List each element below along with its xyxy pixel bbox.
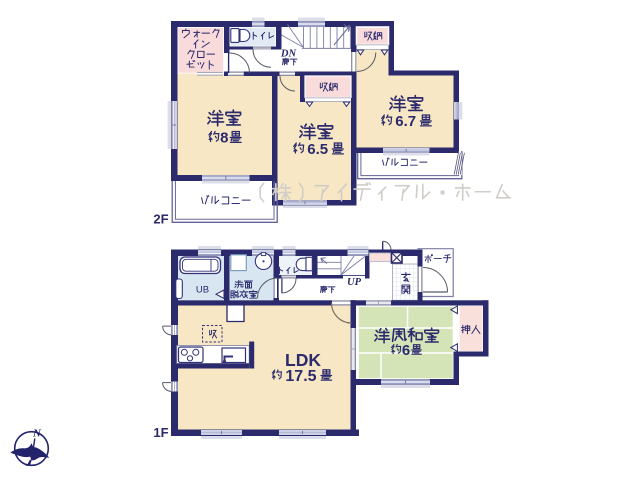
svg-text:UB: UB	[196, 285, 209, 296]
svg-text:UP: UP	[347, 277, 362, 288]
svg-text:1F: 1F	[153, 425, 168, 440]
svg-text:8: 8	[220, 129, 228, 146]
svg-text:6.7: 6.7	[395, 113, 416, 130]
svg-text:DN: DN	[280, 49, 297, 60]
svg-text:6.5: 6.5	[307, 141, 328, 158]
svg-text:17.5: 17.5	[285, 368, 316, 385]
svg-text:6: 6	[402, 342, 410, 359]
svg-text:2F: 2F	[153, 212, 168, 227]
svg-text:N: N	[32, 428, 42, 440]
